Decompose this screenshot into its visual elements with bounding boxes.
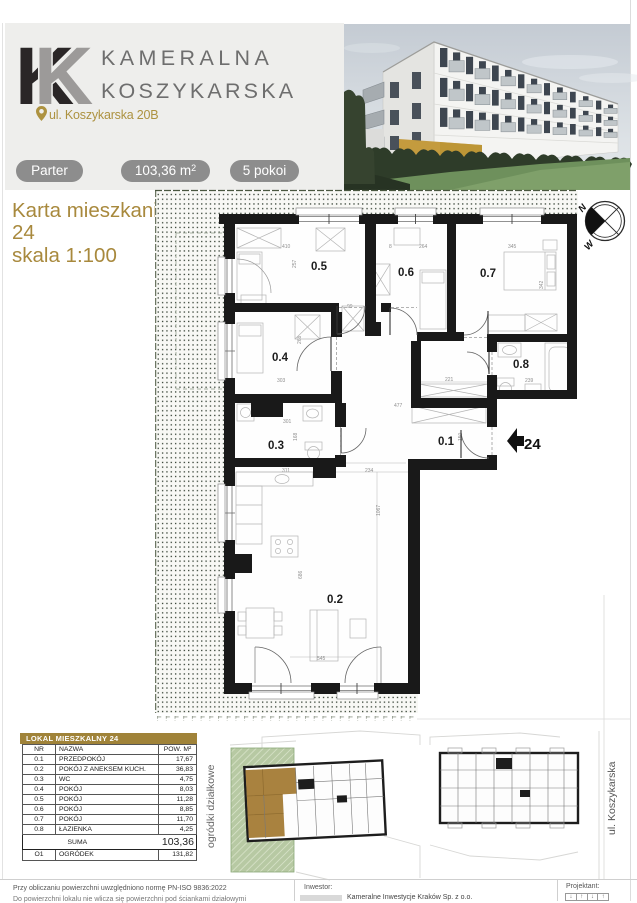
svg-text:0.1: 0.1 bbox=[438, 436, 455, 448]
svg-text:0.7: 0.7 bbox=[480, 268, 496, 280]
svg-text:311: 311 bbox=[282, 468, 290, 474]
svg-text:168: 168 bbox=[293, 432, 299, 441]
svg-text:0.8: 0.8 bbox=[513, 359, 530, 371]
svg-text:W: W bbox=[582, 238, 597, 253]
svg-text:239: 239 bbox=[525, 378, 534, 384]
svg-text:345: 345 bbox=[508, 244, 517, 250]
svg-text:686: 686 bbox=[298, 570, 304, 579]
svg-text:301: 301 bbox=[283, 419, 292, 425]
svg-text:0.6: 0.6 bbox=[398, 267, 414, 279]
svg-text:257: 257 bbox=[292, 259, 298, 268]
svg-text:0.4: 0.4 bbox=[272, 352, 289, 364]
svg-text:303: 303 bbox=[277, 378, 286, 384]
svg-text:410: 410 bbox=[282, 244, 291, 250]
svg-text:99: 99 bbox=[347, 304, 353, 310]
svg-text:342: 342 bbox=[539, 280, 545, 289]
svg-text:0.2: 0.2 bbox=[327, 594, 343, 606]
svg-text:0.3: 0.3 bbox=[268, 440, 284, 452]
svg-text:8: 8 bbox=[389, 244, 392, 250]
svg-text:221: 221 bbox=[445, 377, 454, 383]
svg-text:268: 268 bbox=[297, 335, 303, 344]
svg-text:0.5: 0.5 bbox=[311, 261, 328, 273]
svg-text:234: 234 bbox=[365, 468, 374, 474]
svg-text:477: 477 bbox=[394, 403, 403, 409]
svg-text:1067: 1067 bbox=[376, 505, 382, 516]
svg-text:24: 24 bbox=[524, 436, 541, 453]
